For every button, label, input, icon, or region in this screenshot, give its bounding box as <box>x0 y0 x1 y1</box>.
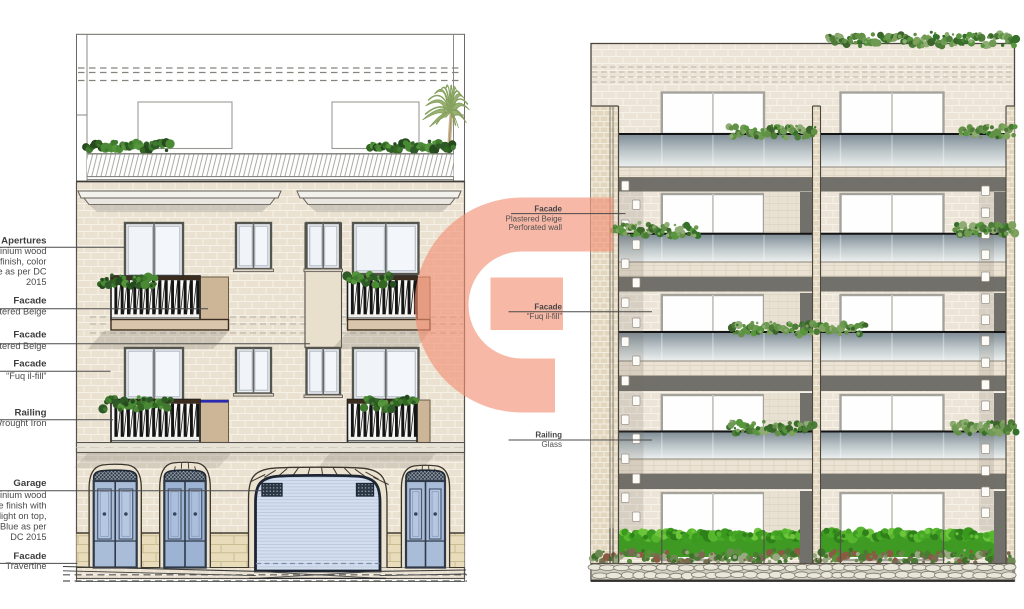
svg-text:2015: 2015 <box>26 277 46 287</box>
svg-text:Glass: Glass <box>542 440 562 449</box>
svg-text:Wrought Iron: Wrought Iron <box>0 418 47 428</box>
svg-text:Railing: Railing <box>15 408 47 419</box>
svg-text:Facade: Facade <box>534 204 562 213</box>
svg-text:DC 2015: DC 2015 <box>10 532 46 542</box>
svg-text:Aluminium wood: Aluminium wood <box>0 246 47 256</box>
svg-text:Bronze as per DC: Bronze as per DC <box>0 267 47 277</box>
svg-text:Railing: Railing <box>535 430 562 439</box>
svg-text:Perforated wall: Perforated wall <box>509 223 563 232</box>
svg-text:Facade: Facade <box>534 302 562 311</box>
svg-text:Facade: Facade <box>13 358 46 369</box>
svg-text:colour Blue as per: colour Blue as per <box>0 522 47 532</box>
svg-text:Aluminium wood: Aluminium wood <box>0 490 47 500</box>
svg-text:Plastered Beige: Plastered Beige <box>506 214 563 223</box>
svg-text:Travertine: Travertine <box>5 561 46 571</box>
svg-text:Facade: Facade <box>13 295 46 306</box>
svg-text:Garage: Garage <box>13 478 46 489</box>
svg-text:matte finish with: matte finish with <box>0 501 47 511</box>
svg-text:Plastered Beige: Plastered Beige <box>0 341 47 351</box>
svg-text:“Fuq il-fill”: “Fuq il-fill” <box>6 371 46 381</box>
svg-text:Apertures: Apertures <box>1 236 46 247</box>
svg-text:Plastered Beige: Plastered Beige <box>0 306 47 316</box>
svg-text:fanlight on top,: fanlight on top, <box>0 511 47 521</box>
svg-text:Facade: Facade <box>13 330 46 341</box>
svg-text:matt finish, color: matt finish, color <box>0 256 47 266</box>
svg-text:“Fuq il-fill”: “Fuq il-fill” <box>527 312 562 321</box>
